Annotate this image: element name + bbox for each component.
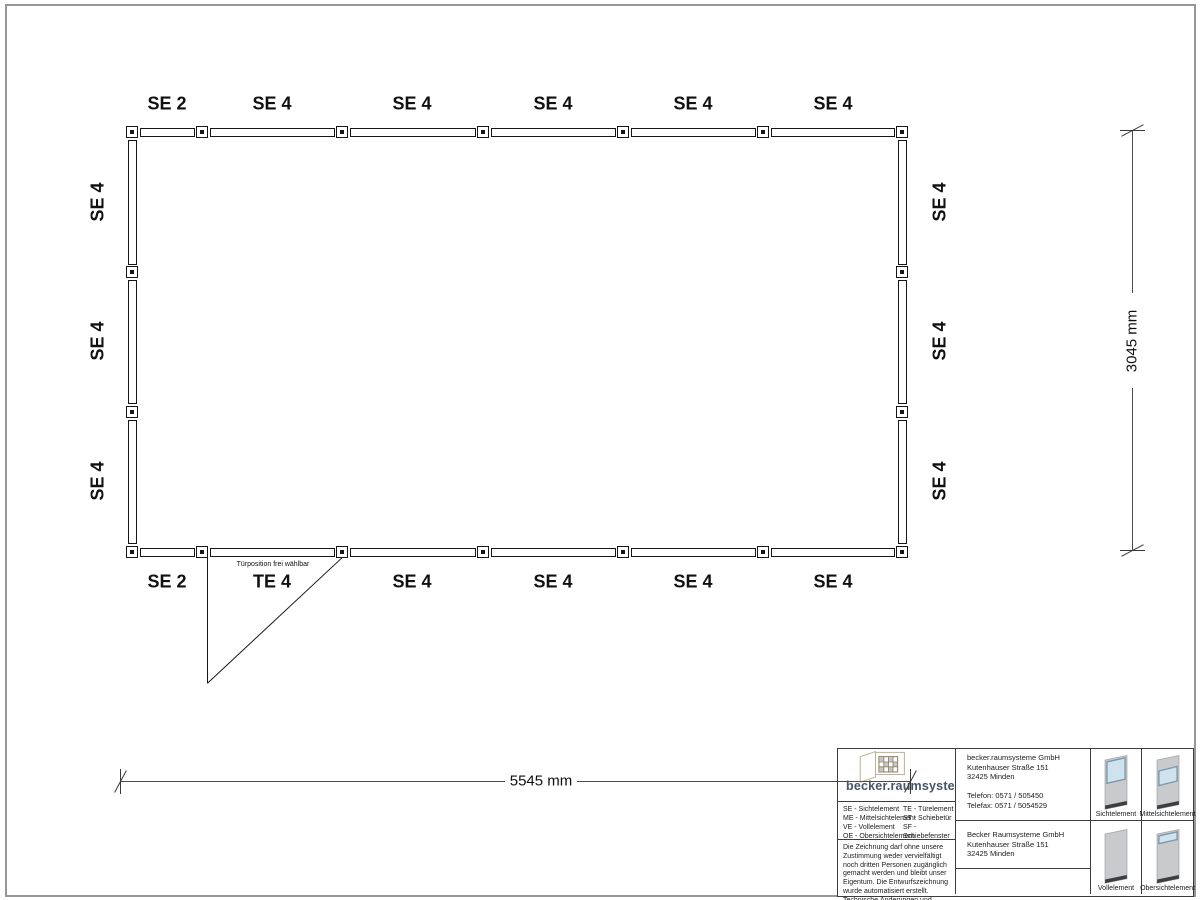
height-dimension-text: 3045 mm — [1124, 310, 1141, 373]
wall-post — [896, 546, 908, 558]
mittelsichtelement-icon — [1150, 751, 1186, 811]
wall-segment — [771, 128, 895, 137]
element-card-vollelement: Vollelement — [1091, 821, 1142, 894]
wall-post — [477, 546, 489, 558]
wall-post — [126, 546, 138, 558]
wall-segment — [140, 128, 195, 137]
element-label-top: SE 2 — [147, 94, 186, 115]
element-card-obersichtelement: Obersichtelement — [1142, 821, 1193, 894]
wall-post — [196, 126, 208, 138]
vollelement-icon — [1098, 825, 1134, 885]
element-label-top: SE 4 — [533, 94, 572, 115]
element-label-right: SE 4 — [930, 182, 951, 221]
wall-post — [617, 546, 629, 558]
wall-post — [757, 546, 769, 558]
owner-cell: Becker Raumsysteme GmbH Kutenhauser Stra… — [956, 821, 1091, 869]
element-card-label: Vollelement — [1098, 885, 1134, 892]
contact-cell: becker.raumsysteme GmbH Kutenhauser Stra… — [956, 749, 1091, 821]
element-label-bottom: SE 2 — [147, 572, 186, 593]
wall-segment — [898, 280, 907, 404]
wall-segment — [491, 128, 616, 137]
sichtelement-icon — [1098, 751, 1134, 811]
wall-post — [126, 266, 138, 278]
wall-segment — [210, 128, 335, 137]
legend-cell: SE - Sichtelement ME - Mittelsichtelemen… — [838, 802, 956, 840]
element-card-label: Mittelsichtelement — [1139, 811, 1195, 818]
wall-segment — [128, 140, 137, 265]
wall-segment — [631, 128, 756, 137]
element-label-bottom: SE 4 — [392, 572, 431, 593]
wall-segment — [140, 548, 195, 557]
element-card-label: Obersichtelement — [1140, 885, 1195, 892]
wall-post — [126, 126, 138, 138]
empty-cell — [956, 869, 1091, 894]
logo-room-sketch — [854, 749, 914, 783]
height-dimension-line — [1132, 130, 1133, 293]
wall-segment — [350, 128, 476, 137]
height-dimension-line — [1132, 388, 1133, 550]
wall-segment — [128, 420, 137, 544]
title-block: becker.raumsysteme® SE - Sichtelement ME… — [837, 748, 1194, 897]
element-card-label: Sichtelement — [1096, 811, 1136, 818]
wall-post — [477, 126, 489, 138]
wall-post — [757, 126, 769, 138]
drawing-page: Türposition frei wählbar SE 2 SE 4 SE 4 … — [0, 0, 1200, 900]
element-card-mittelsichtelement: Mittelsichtelement — [1142, 749, 1193, 821]
element-label-bottom: SE 4 — [813, 572, 852, 593]
logo-cell: becker.raumsysteme® — [838, 749, 956, 802]
door-element-segment — [210, 548, 335, 557]
width-dimension-line — [577, 781, 910, 782]
width-dimension-line — [120, 781, 505, 782]
element-label-left: SE 4 — [88, 461, 109, 500]
wall-segment — [128, 280, 137, 404]
element-label-top: SE 4 — [252, 94, 291, 115]
wall-segment — [898, 140, 907, 265]
element-label-top: SE 4 — [392, 94, 431, 115]
disclaimer-text: Die Zeichnung darf ohne unsere Zustimmun… — [843, 844, 951, 900]
element-label-right: SE 4 — [930, 321, 951, 360]
disclaimer-cell: Die Zeichnung darf ohne unsere Zustimmun… — [838, 840, 956, 894]
wall-post — [336, 126, 348, 138]
element-label-top: SE 4 — [673, 94, 712, 115]
element-label-left: SE 4 — [88, 321, 109, 360]
wall-post — [896, 406, 908, 418]
wall-segment — [631, 548, 756, 557]
element-label-left: SE 4 — [88, 182, 109, 221]
wall-post — [126, 406, 138, 418]
wall-post — [617, 126, 629, 138]
owner-text: Becker Raumsysteme GmbH Kutenhauser Stra… — [967, 830, 1064, 859]
wall-segment — [771, 548, 895, 557]
door-position-note: Türposition frei wählbar — [237, 561, 310, 568]
element-label-bottom: SE 4 — [673, 572, 712, 593]
wall-segment — [898, 420, 907, 544]
wall-segment — [350, 548, 476, 557]
element-card-sichtelement: Sichtelement — [1091, 749, 1142, 821]
width-dimension-text: 5545 mm — [510, 773, 573, 790]
element-label-right: SE 4 — [930, 461, 951, 500]
element-label-bottom: TE 4 — [253, 572, 291, 593]
wall-post — [896, 126, 908, 138]
wall-segment — [491, 548, 616, 557]
door-leaf-line — [207, 557, 208, 683]
wall-post — [896, 266, 908, 278]
element-label-top: SE 4 — [813, 94, 852, 115]
element-label-bottom: SE 4 — [533, 572, 572, 593]
obersichtelement-icon — [1150, 825, 1186, 885]
